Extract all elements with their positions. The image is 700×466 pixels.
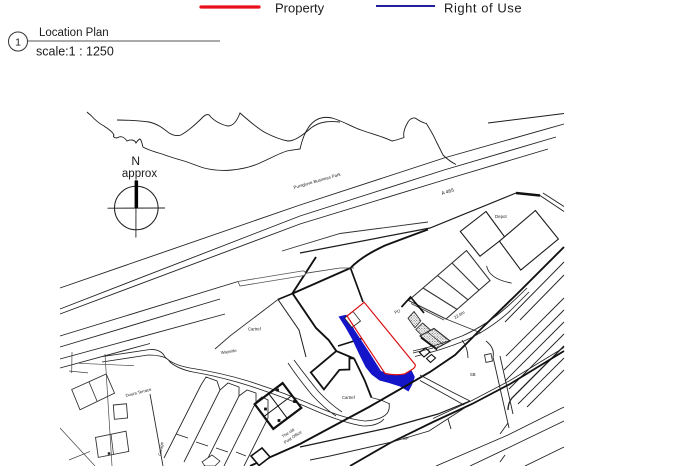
svg-text:Wayside: Wayside xyxy=(220,348,237,355)
svg-text:A 465: A 465 xyxy=(441,187,455,197)
svg-text:Location Plan: Location Plan xyxy=(39,27,109,39)
svg-text:Pursglove Business Park: Pursglove Business Park xyxy=(293,171,342,189)
svg-text:Garage: Garage xyxy=(157,441,164,456)
svg-text:scale:1 : 1250: scale:1 : 1250 xyxy=(36,45,114,59)
svg-text:1: 1 xyxy=(15,37,21,49)
svg-text:SB: SB xyxy=(470,372,476,377)
svg-text:Depot: Depot xyxy=(495,214,507,219)
svg-text:approx: approx xyxy=(122,168,157,180)
svg-text:Cartref: Cartref xyxy=(248,327,262,332)
svg-text:Property: Property xyxy=(275,1,325,16)
svg-text:N: N xyxy=(131,154,140,168)
svg-text:PO: PO xyxy=(394,308,402,315)
svg-text:Doura Terrace: Doura Terrace xyxy=(125,387,153,398)
svg-text:Right of Use: Right of Use xyxy=(444,1,522,16)
svg-text:Cartref: Cartref xyxy=(342,395,356,400)
